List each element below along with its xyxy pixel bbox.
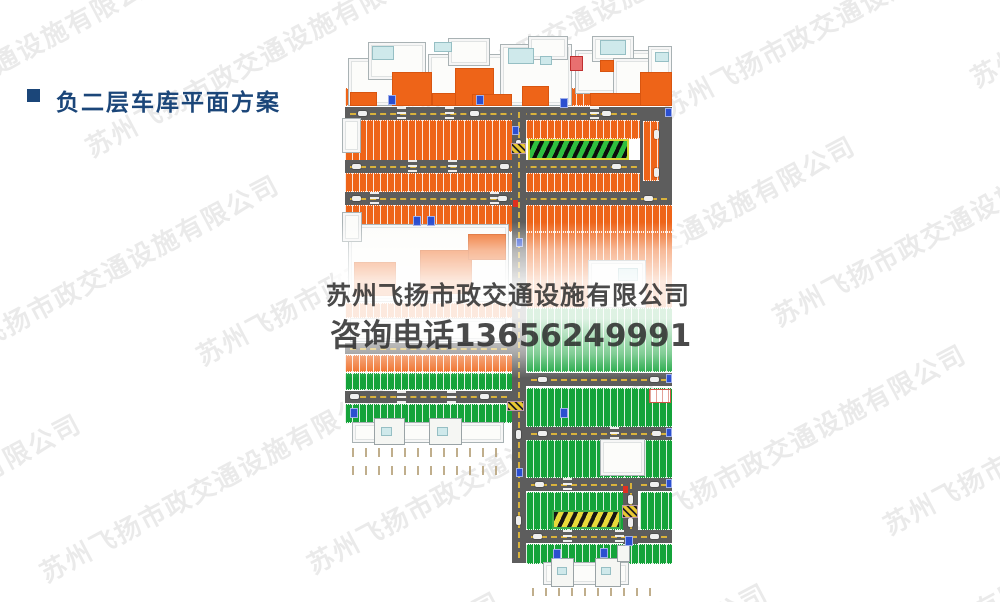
sign-marker [666,428,672,437]
parking-stalls-green [526,308,672,372]
stair-core-fill [437,427,448,436]
car-symbol [470,111,479,116]
car-symbol [538,431,547,436]
driveway-central [512,107,526,563]
sign-marker [666,479,672,488]
building-footprint [350,318,506,342]
sign-marker [600,548,608,558]
crosswalk-marking [590,107,599,120]
car-symbol [644,196,653,201]
page-title: 负二层车库平面方案 [56,83,281,117]
hazard-hatch-marking [507,401,524,411]
stair-core-fill [540,56,552,65]
stair-core-fill [618,268,638,281]
crosswalk-marking [448,160,457,173]
stair-core-fill [381,427,392,436]
dimension-ticks [352,448,508,457]
car-symbol [516,516,521,525]
crosswalk-marking [408,160,417,173]
car-symbol [628,518,633,527]
crosswalk-marking [563,478,572,491]
car-symbol [628,495,633,504]
sign-marker [665,108,672,117]
sign-marker [560,408,568,418]
building-footprint [448,38,490,66]
hydrant-marker [513,200,518,207]
car-symbol [650,482,659,487]
car-symbol [516,300,521,309]
stair-core-fill [600,40,626,55]
building-footprint [342,118,361,153]
car-symbol [533,534,542,539]
crosswalk-marking [370,192,379,205]
dimension-ticks [352,466,508,475]
car-symbol [650,377,659,382]
room-fill [392,72,432,106]
crosswalk-marking [445,107,454,120]
stair-core-fill [372,46,394,60]
sign-marker [512,126,519,135]
driveway-horizontal [526,427,672,440]
car-symbol [500,164,509,169]
car-symbol [358,111,367,116]
stair-core-fill [434,42,452,52]
parking-stalls-green [526,440,672,478]
ramp-chevron-lower [552,510,621,529]
building-footprint [600,439,645,476]
sign-marker [413,216,421,226]
hazard-hatch-marking [511,143,526,154]
crosswalk-marking [447,391,456,403]
stair-core [617,545,630,562]
car-symbol [535,482,544,487]
driveway-top [345,107,672,120]
stair-core-fill [557,567,567,575]
room-fill [590,93,646,106]
sign-marker [476,95,484,105]
car-symbol [350,394,359,399]
car-symbol [480,394,489,399]
stair-core-fill [508,48,534,64]
room-fill [468,234,506,260]
driveway-horizontal [345,343,512,354]
car-symbol [516,430,521,439]
room-fill [640,72,672,106]
room-fill [354,262,396,296]
sign-marker [516,468,523,477]
sign-marker [427,216,435,226]
room-fill [600,60,614,72]
crosswalk-marking [610,427,619,440]
hazard-hatch-marking [622,505,638,518]
sign-marker [350,408,358,418]
stalls-reserved [649,389,671,403]
car-symbol [650,534,659,539]
parking-stalls-orange [345,120,512,161]
ramp-chevron-upper [528,139,629,160]
parking-stalls-orange [345,355,512,372]
car-symbol [654,130,659,139]
driveway-horizontal [345,192,672,205]
entrance-marker [570,56,583,71]
crosswalk-marking [563,530,572,543]
car-symbol [352,196,361,201]
car-symbol [352,164,361,169]
stair-core-fill [601,567,611,575]
slide: 苏州飞扬市政交通设施有限公司苏州飞扬市政交通设施有限公司苏州飞扬市政交通设施有限… [0,0,1000,602]
room-fill [350,92,377,106]
sign-marker [516,238,523,247]
room-fill [522,86,549,106]
title-bullet-square [27,89,40,102]
sign-marker [560,98,568,108]
car-symbol [612,164,621,169]
hydrant-marker [623,486,628,493]
sign-marker [666,374,672,383]
car-symbol [654,168,659,177]
crosswalk-marking [397,107,406,120]
stair-core-fill [655,52,669,62]
crosswalk-marking [615,530,624,543]
dimension-ticks [532,588,658,596]
parking-stalls-orange [345,173,512,192]
parking-stalls-orange [526,205,672,232]
crosswalk-marking [397,391,406,403]
room-fill [420,250,472,294]
sign-marker [553,549,561,559]
parking-stalls-green [345,373,512,390]
parking-stalls-orange [526,173,640,192]
sign-marker [388,95,396,105]
car-symbol [498,196,507,201]
parking-stalls-green [640,492,672,530]
parking-stalls-orange [526,120,640,139]
car-symbol [652,431,661,436]
car-symbol [602,111,611,116]
building-footprint [342,212,362,242]
parking-stalls-orange [345,303,512,318]
car-symbol [538,377,547,382]
sign-marker [625,536,633,546]
